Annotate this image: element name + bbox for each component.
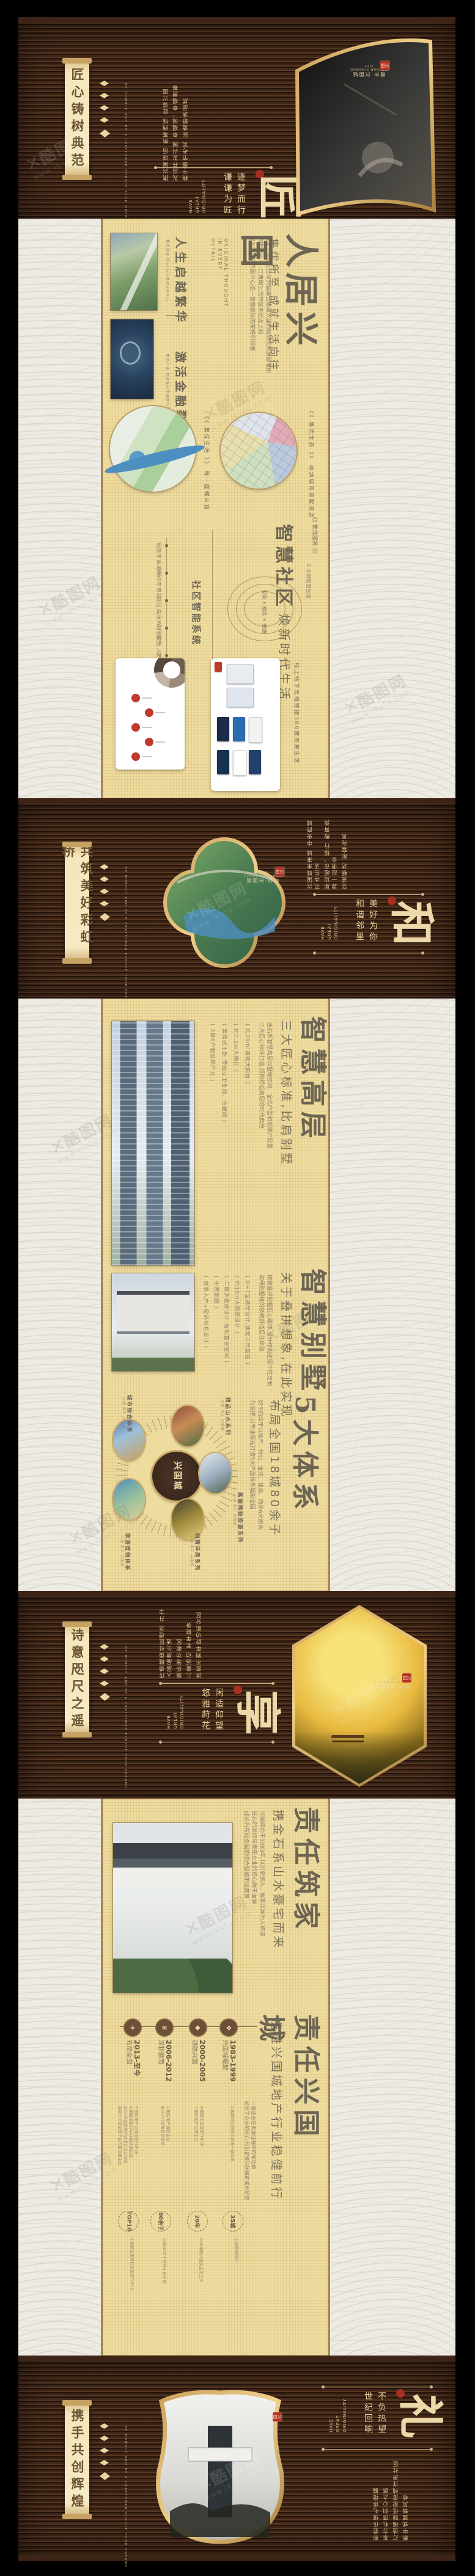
five-subtitle: 布局全国18城80余子 xyxy=(267,1400,282,1537)
body-column: 兴国城未来城 中央商城范本生活 xyxy=(307,816,322,889)
diamond-ornament xyxy=(100,1644,109,1650)
series-label-sub: 兴国 滨江 兴国城 xyxy=(119,1535,123,1566)
dotted-rule xyxy=(323,2387,432,2387)
wallpaper-right-3 xyxy=(330,1799,455,2356)
series-label: 精品山水系列 xyxy=(224,1397,230,1436)
villa-body: 精装叠拼别墅匠心雕琢,设计结构还原个性定制 演绎别墅级的极致舒适居住体验 xyxy=(257,1275,273,1386)
red-icon xyxy=(131,752,140,761)
diamond-ornaments xyxy=(100,864,110,921)
phone-screen xyxy=(249,717,262,743)
diamond-ornament xyxy=(100,93,109,98)
timeline-label: 深耕赣南 xyxy=(156,2040,164,2064)
red-icon xyxy=(145,708,153,717)
stat-value: TOP10 xyxy=(125,2211,131,2232)
phrase: 悠雅莳花 xyxy=(199,1688,212,1743)
diamond-ornament xyxy=(100,1656,109,1662)
stat-circle: 35城 xyxy=(223,2211,243,2232)
app-screens-card xyxy=(211,658,280,791)
home-title: 责任筑家 xyxy=(289,1806,323,1934)
map-note: 《《 集优生态 》》 收纳城市禀赋资源 xyxy=(306,408,314,519)
circle-center-text: 电商 × 服务 × 金融 xyxy=(261,589,267,633)
series-photo xyxy=(113,1479,145,1519)
red-seal: 兴国 xyxy=(380,61,389,70)
stat-circle: TOP10 xyxy=(118,2211,139,2232)
renju-title: 人居兴国 xyxy=(234,233,323,385)
brand-city: 赣州·兴国城 xyxy=(240,877,285,884)
timeline-icon-trophy: ♛ xyxy=(155,2018,174,2037)
jiang-body-columns: 携兴国城后 执笔西城 匠造兴国 先后开发兴国 幸福城、幸福居等 精于细节考究 匠… xyxy=(160,59,188,181)
scroll-english-caption: BE HUMBLE AND BE A CRAFTSMAN PURSUE YOUR… xyxy=(123,2426,127,2568)
villa-bullet: ( 首层入户+密码权控设计 ) xyxy=(202,1276,208,1348)
timeline-years: 2006-2012 xyxy=(164,2040,173,2082)
slogan-english: HAVE GREAT ORIGINALITY xyxy=(188,179,208,213)
phrase-pair: 逐梦而行 谦谦为匠 xyxy=(220,172,248,227)
he-body-columns: 兴国城未来城 中央商城范本生活 周边超市、银行 教育资源一应俱全 交通畅达 配套… xyxy=(304,816,336,889)
series-label: 创新洋房系列 xyxy=(193,1533,200,1571)
lintel-hint xyxy=(188,2448,252,2461)
calligraphy-he: 和 xyxy=(385,899,434,948)
diamond-ornament xyxy=(100,876,109,882)
wallpaper-left-1 xyxy=(18,219,101,798)
wallpaper-right-1 xyxy=(330,219,455,798)
villa-bullet: ( U+T全通厅设计,满足三代居住 ) xyxy=(243,1276,250,1365)
slogan-english: HAVE GREAT ORIGINALITY xyxy=(328,2398,349,2432)
body-column: 东方礼序归心之旅 xyxy=(383,2460,390,2541)
leaf-ornament xyxy=(100,2472,110,2480)
body-column: 传递健康社区理念 升华人居品质生活 xyxy=(159,1604,174,1678)
gate-photo-shield xyxy=(152,2389,289,2544)
sunset-photo xyxy=(295,1608,424,1784)
diamond-ornament xyxy=(100,901,109,906)
phone-screen xyxy=(217,717,229,741)
icon-glyph: ◆ xyxy=(195,2025,202,2030)
red-icon xyxy=(145,738,153,746)
timeline-sub: 中国房地产品牌价值TOP20 中国建设银行AAA级信用企业 2017中国房地产开… xyxy=(117,2106,139,2166)
planning-map-circle xyxy=(110,406,196,492)
axis-dot xyxy=(165,572,168,575)
stat-sub: 18城80余个项目布局全国 xyxy=(162,2238,167,2283)
icon-glyph: ♛ xyxy=(161,2025,168,2031)
slogan-line: HAVE xyxy=(320,906,326,940)
home-body: 兴国城始于1983年,以历史悠久、根基深厚为人称道 匠心的坚持与责任立业的初心融… xyxy=(241,1811,265,1937)
calligraphy-li: 礼 xyxy=(394,2392,443,2440)
phrase: 逐梦而行 xyxy=(235,172,247,227)
phone-screen xyxy=(233,717,245,741)
xiang-character-block: HAVE GREAT ORIGINALITY 闲适仰望 悠雅莳花 享 xyxy=(159,1688,280,1743)
wallpaper-left-3 xyxy=(18,1799,101,2356)
scroll-english-caption: BE HUMBLE AND BE A CRAFTSMAN PURSUE YOUR… xyxy=(123,1646,127,1789)
slogan-line: HAVE xyxy=(166,1695,172,1729)
courtyard-photo xyxy=(113,1823,232,1993)
craftsman-photo xyxy=(286,35,439,217)
body-column: 周边超市、银行 教育资源一应俱全 xyxy=(324,816,339,889)
body-column: 儿童活动 老年健身 xyxy=(186,1604,193,1678)
slogan-english: HAVE GREAT ORIGINALITY xyxy=(320,906,341,940)
scroll-banner-jiang: 匠心铸树典范 xyxy=(65,61,89,177)
timeline-years: 2000-2005 xyxy=(197,2040,207,2082)
slogan-line: ORIGINALITY xyxy=(342,2398,349,2432)
phrase: 谦谦为匠 xyxy=(221,172,234,227)
leaf-ornament xyxy=(100,1693,110,1701)
phrase-pair: 美好为你 和谐邻里 xyxy=(352,899,380,954)
timeline-icon-medal: ❖ xyxy=(219,2018,238,2037)
series-photo xyxy=(199,1453,231,1493)
community-tag: ① 引领智慧生活 xyxy=(305,563,311,599)
phone-screen xyxy=(249,750,261,774)
diamond-ornament xyxy=(100,2423,109,2429)
wallpaper-left-2 xyxy=(18,999,101,1591)
dotted-rule xyxy=(160,1683,273,1684)
timeline-years: 2013-至今 xyxy=(132,2040,141,2076)
timeline-label: 兴国城崛起 xyxy=(221,2040,229,2070)
high-bullet: ( 套房式主卧,带独立卫生间、衣帽间 ) xyxy=(220,1024,227,1122)
city-title: 责任兴国城 xyxy=(254,2014,323,2166)
scroll-banner-he: 共筑美好彩虹桥 xyxy=(65,845,89,961)
mall-aerial-photo xyxy=(111,233,157,310)
slogan-line: ORIGINALITY xyxy=(202,179,208,213)
villa-bullet: ( 中西双厨 ) xyxy=(212,1276,219,1309)
phrase: 世纪回响 xyxy=(362,2392,374,2447)
body-column: 打造稀缺低密度纯洋房社区 xyxy=(392,2460,400,2541)
system-label: 社区智能系统 xyxy=(190,580,202,646)
icon-glyph: ❖ xyxy=(226,2025,232,2031)
brand-city: 赣州·兴国城 xyxy=(346,71,391,78)
center-logo: 兴国城 xyxy=(152,1452,201,1501)
leaf-ornament xyxy=(100,913,110,921)
home-subtitle: 携金石系山水豪宅而来 xyxy=(270,1810,285,1950)
browser-window xyxy=(227,664,254,684)
stat-value: 20年 xyxy=(194,2214,202,2228)
scroll-english-caption: BE HUMBLE AND BE A CRAFTSMAN PURSUE YOUR… xyxy=(123,867,127,1009)
scroll-title: 诗意咫尺之遥 xyxy=(68,1628,86,1731)
diamond-ornaments xyxy=(100,2423,110,2480)
high-body: 金石系智慧高层以墅级空间、全优户型和低梯户配置 三大匠心标准打造,领衔舒适高层的… xyxy=(257,1022,273,1149)
phrase-pair: 闲适仰望 悠雅莳花 xyxy=(198,1688,226,1743)
axis-dot xyxy=(165,599,168,602)
diamond-ornament xyxy=(100,81,109,86)
body-column: 精于细节考究 匠造舒适品质 xyxy=(182,59,190,181)
axis-dot xyxy=(165,544,168,547)
red-icon xyxy=(131,723,140,732)
bench-hint xyxy=(331,1735,365,1738)
five-body: 如今的华宇以地产、物业、金控、建设、海外6大板块 为支撑,以专业眼光打造5大产品… xyxy=(248,1400,263,1530)
stat-value: 80余子 xyxy=(157,2212,165,2231)
high-bullet: ( 3梯6户超低梯户比 ) xyxy=(208,1024,215,1082)
axis-dot xyxy=(165,627,168,630)
caption-tiny: 集优商业 约50万方体验式MALL xyxy=(164,239,169,302)
slogan-line: GREAT xyxy=(172,1695,179,1729)
wallpaper-right-2 xyxy=(330,999,455,1591)
scroll-title: 匠心铸树典范 xyxy=(68,68,86,170)
series-label-sub: 兴国 滨江 兴国城 xyxy=(121,1397,125,1428)
series-label: 城市综合体系 xyxy=(125,1395,132,1433)
slogan-line: GREAT xyxy=(194,179,201,213)
body-column: 新中式建筑风格 xyxy=(402,2460,410,2541)
dotted-rule xyxy=(160,1742,273,1742)
stat-value: 35城 xyxy=(229,2214,237,2228)
diamond-ornament xyxy=(100,2448,109,2453)
body-column: 彰显传统礼序精髓 xyxy=(373,2460,380,2541)
cards-caption: 线上线下无缝链接360度完美生活 xyxy=(292,663,299,764)
phrase-pair: 不负热望 世纪回响 xyxy=(361,2392,389,2447)
he-character-block: HAVE GREAT ORIGINALITY 美好为你 和谐邻里 和 xyxy=(313,899,434,954)
dotted-rule xyxy=(155,167,271,168)
slogan-line: GREAT xyxy=(326,906,333,940)
red-seal: 兴国 xyxy=(402,1673,411,1683)
timeline-label: 布局全国 xyxy=(125,2040,133,2064)
villa-bullet: ( 二楼多套房设计,智配露台空间 ) xyxy=(223,1276,229,1363)
timeline-icon-diamond: ◆ xyxy=(189,2018,207,2037)
slogan-line: ORIGINALITY xyxy=(180,1695,186,1729)
slogan-line: HAVE xyxy=(328,2398,335,2432)
high-bullet: ( 约20m²景观大阳台 ) xyxy=(243,1024,250,1085)
jiang-character-block: HAVE GREAT ORIGINALITY 逐梦而行 谦谦为匠 匠 xyxy=(181,172,302,227)
series-label-sub: 兴国 滨江 兴国城 xyxy=(232,1494,236,1526)
high-subtitle: 三大匠心标准,比肩别墅 xyxy=(278,1020,293,1166)
phrase: 和谐邻里 xyxy=(353,899,366,954)
dotted-rule xyxy=(314,894,423,895)
stat-circle: 20年 xyxy=(187,2211,208,2232)
high-bullet: ( 约7.2m大横厅 ) xyxy=(232,1024,238,1072)
diamond-ornament xyxy=(100,864,109,870)
icon-glyph: ✈ xyxy=(130,2025,136,2030)
series-photo xyxy=(172,1406,204,1446)
red-seal: 兴国 xyxy=(275,867,284,876)
timeline-icon-plane: ✈ xyxy=(123,2018,142,2037)
timeline-sub: 中国城市运营商TOP50 中国房地产品牌企业 xyxy=(193,2106,204,2147)
dotted-rule xyxy=(323,2449,432,2450)
series-label-sub: 兴国 滨江 兴国城 xyxy=(189,1535,193,1566)
infographic-card xyxy=(116,658,185,770)
donut-chart xyxy=(154,658,185,688)
timeline-label: 领航兴国 xyxy=(190,2040,198,2064)
timeline-sub: 兴国城物业获物业管理一级资质 xyxy=(229,2106,235,2161)
grass-hint xyxy=(170,2503,270,2537)
diamond-ornament xyxy=(100,2436,109,2441)
stat-sub: 20年蝉联兴国房企前三甲 xyxy=(199,2238,204,2282)
poster-page: 匠心铸树典范 BE HUMBLE AND BE A CRAFTSMAN PURS… xyxy=(0,0,475,2576)
body-column: 适应不同年龄功能分区 xyxy=(196,1604,204,1678)
gate-hint xyxy=(208,2426,232,2517)
diamond-ornaments xyxy=(100,81,110,137)
phone-screen xyxy=(217,750,229,774)
phrase: 不负热望 xyxy=(375,2392,388,2447)
body-column: 交通畅达 配套完善 xyxy=(342,816,349,889)
quatrefoil-frame xyxy=(165,839,284,966)
brand-city: 赣州·兴国城 xyxy=(370,1683,416,1690)
diamond-ornament xyxy=(100,117,109,123)
calligraphy-xiang: 享 xyxy=(231,1688,280,1737)
red-seal: 兴国 xyxy=(273,2412,282,2421)
caption-tiny: 集优产业 缔造城市金融新引擎 xyxy=(164,354,169,411)
diamond-ornament xyxy=(100,105,109,111)
slogan-line: GREAT xyxy=(335,2398,342,2432)
stat-circle: 80余子 xyxy=(150,2211,171,2232)
stat-sub: 中国物业服务社区运营TOP10 xyxy=(130,2238,134,2290)
caption-rule xyxy=(166,315,188,316)
leaf-ornament xyxy=(100,129,110,137)
phrase: 闲适仰望 xyxy=(213,1688,225,1743)
smart-item: 移动充电站 xyxy=(155,570,161,599)
high-title: 智慧高层 xyxy=(295,1016,330,1143)
scroll-title: 携手共创辉煌 xyxy=(68,2409,86,2511)
xiang-body-columns: 传递健康社区理念 升华人居品质生活 娱乐等功能区 儿童活动 老年健身 适应不同年… xyxy=(156,1604,224,1678)
slogan-line: HAVE xyxy=(188,179,194,213)
li-character-block: HAVE GREAT ORIGINALITY 不负热望 世纪回响 礼 xyxy=(322,2392,443,2447)
li-body-columns: 彰显传统礼序精髓 东方礼序归心之旅 打造稀缺低密度纯洋房社区 新中式建筑风格 xyxy=(370,2460,439,2541)
scroll-banner-xiang: 诗意咫尺之遥 xyxy=(65,1625,89,1734)
browser-window xyxy=(227,688,254,707)
english-tagline: ORIGINAL THOUGHT IN EVERY DETAIL xyxy=(210,238,229,307)
series-label-sub: 兴国 滨江 兴国城 xyxy=(219,1400,224,1431)
villa-title: 智慧别墅 xyxy=(295,1268,330,1395)
zoning-map-circle xyxy=(221,413,296,489)
diamond-ornament xyxy=(100,889,109,894)
five-title: 5大体系 xyxy=(287,1395,322,1515)
body-column: 娱乐等功能区 xyxy=(176,1604,183,1678)
scroll-banner-li: 携手共创辉煌 xyxy=(65,2403,89,2516)
stat-sub: 35城稳健前行 xyxy=(234,2238,239,2263)
slogan-english: HAVE GREAT ORIGINALITY xyxy=(166,1695,186,1729)
quatrefoil-photo xyxy=(159,824,290,971)
villa-photo xyxy=(112,1273,194,1371)
phrase: 美好为你 xyxy=(367,899,379,954)
red-icon xyxy=(131,694,140,702)
body-column: 携兴国城后 执笔西城 匠造兴国 xyxy=(163,59,170,181)
timeline-years: 1983-1999 xyxy=(228,2040,237,2082)
diamond-ornaments xyxy=(100,1644,110,1701)
diamond-ornament xyxy=(100,1681,109,1686)
map-note: 《《 集优生活 》》 每一面都从容 xyxy=(202,413,209,511)
scroll-english-caption: BE HUMBLE AND BE A CRAFTSMAN PURSUE YOUR… xyxy=(123,83,127,225)
service-bracket: 《《 集优服务 》》 xyxy=(310,514,317,556)
dotted-rule xyxy=(314,953,423,953)
scroll-title: 共筑美好彩虹桥 xyxy=(59,845,95,961)
center-logo-text: 兴国城 xyxy=(171,1461,183,1491)
slogan-line: ORIGINALITY xyxy=(334,906,341,940)
timeline-sub: 中国房地产诚信企业 金沙时代获鲁班奖金奖 xyxy=(160,2106,171,2145)
axis-dot xyxy=(165,654,168,657)
caption-title: 人生启越繁华 xyxy=(172,237,188,325)
diamond-ornament xyxy=(100,2460,109,2465)
series-label: 高端稀缺资源系列 xyxy=(236,1492,243,1543)
body-column: 先后开发兴国 幸福城、幸福居等 xyxy=(172,59,180,181)
red-tag xyxy=(215,662,222,672)
phone-screen xyxy=(233,750,246,776)
villa-bullet: ( 约10m大面宽设计 ) xyxy=(233,1276,240,1334)
highrise-photo xyxy=(112,1021,194,1265)
finance-aerial-photo xyxy=(111,319,153,399)
series-label: 旅游度假体系 xyxy=(123,1533,130,1571)
diamond-ornament xyxy=(100,1668,109,1674)
